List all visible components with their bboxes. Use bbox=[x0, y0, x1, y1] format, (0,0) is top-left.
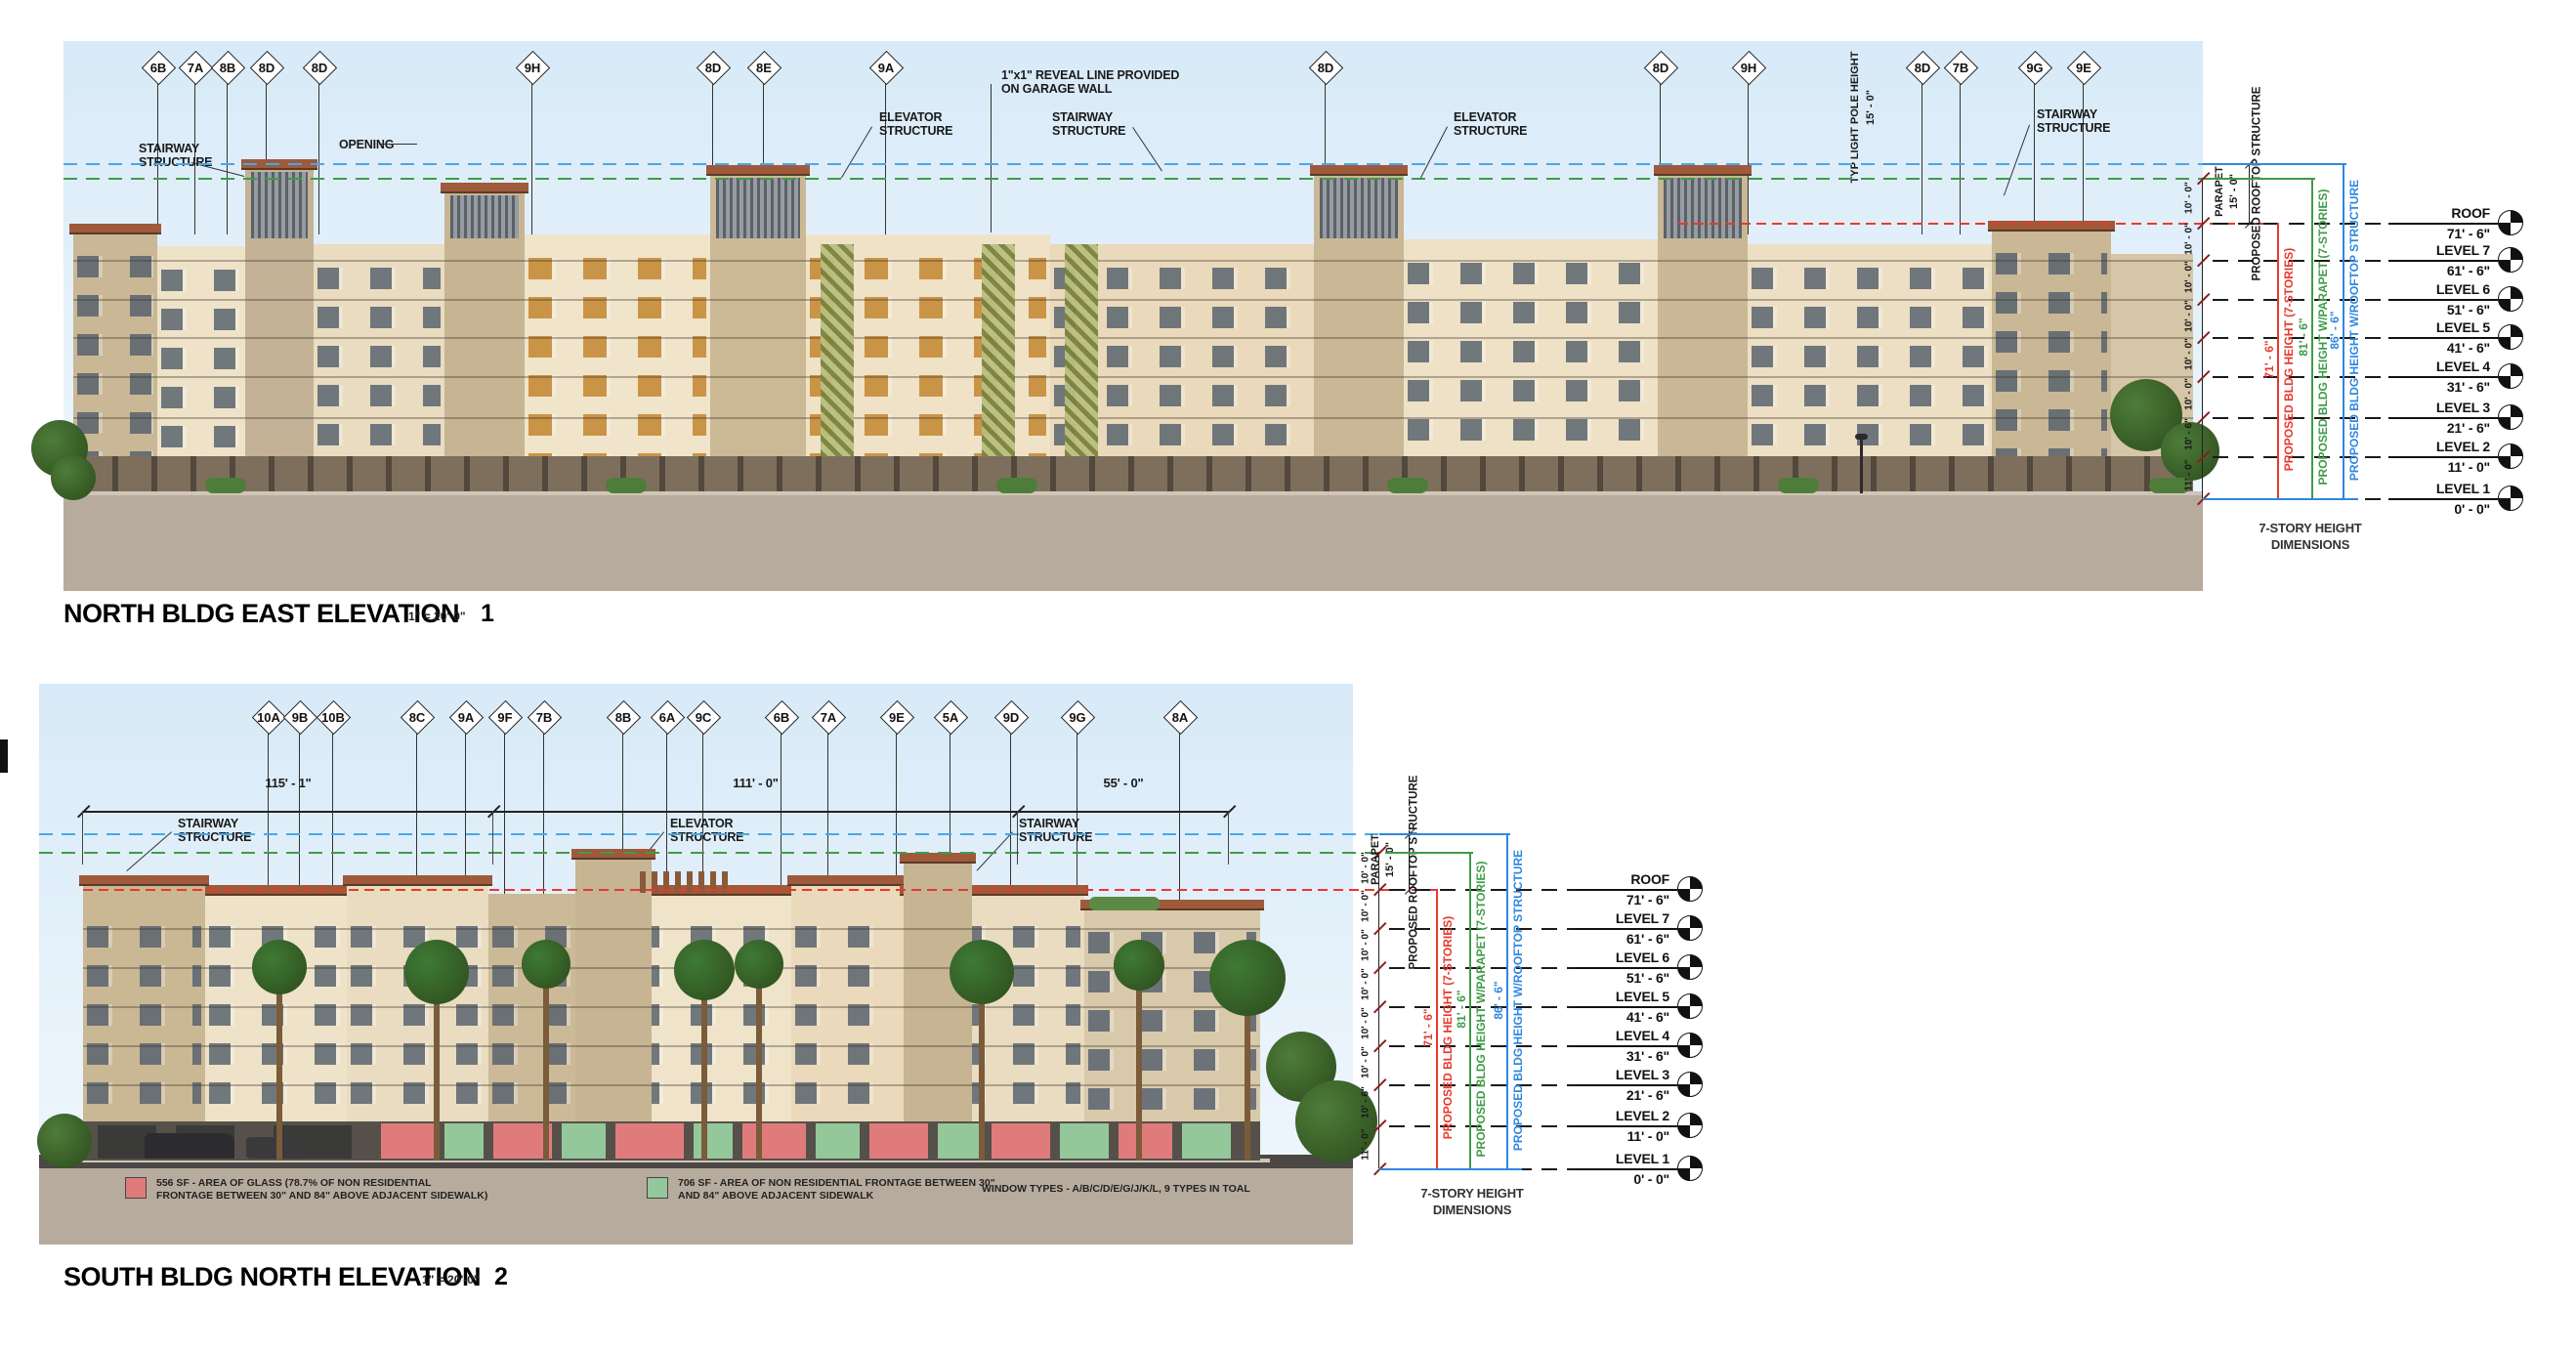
el1-level-line-solid bbox=[2388, 337, 2498, 339]
el2-frontage-panel bbox=[694, 1123, 733, 1159]
elevation2-number: 2 bbox=[494, 1263, 508, 1291]
el1-level-name: LEVEL 1 bbox=[2345, 481, 2490, 496]
el2-level-target-icon bbox=[1677, 876, 1703, 902]
el2-height-caption-2: DIMENSIONS bbox=[1365, 1203, 1580, 1217]
el1-vent-grille bbox=[716, 178, 800, 238]
el1-marker-label: 7A bbox=[179, 61, 212, 75]
el2-frontage-panel bbox=[1119, 1123, 1172, 1159]
el1-annotation: STRUCTURE bbox=[1454, 124, 1527, 138]
el1-level-elev: 11' - 0" bbox=[2345, 459, 2490, 475]
el2-rooftop-height-dim-line bbox=[1506, 833, 1508, 1168]
el1-marker-label: 9A bbox=[869, 61, 903, 75]
el2-level-elev: 31' - 6" bbox=[1525, 1048, 1669, 1064]
el1-roof-cap bbox=[441, 183, 528, 191]
el1-marker-leader bbox=[2034, 83, 2035, 234]
el1-window-grid bbox=[1996, 243, 2107, 456]
el1-level-line-solid bbox=[2388, 498, 2498, 500]
el2-level-target-icon bbox=[1677, 915, 1703, 941]
el1-level-elev: 31' - 6" bbox=[2345, 379, 2490, 395]
el1-light-pole-head bbox=[1855, 434, 1868, 440]
el1-floor-dim: 11' - 0" bbox=[2184, 455, 2195, 494]
el2-facade-segment bbox=[575, 858, 652, 1121]
el1-level-line bbox=[2213, 299, 2388, 301]
el2-level-elev: 21' - 6" bbox=[1525, 1087, 1669, 1103]
el1-annotation: STRUCTURE bbox=[2037, 121, 2110, 135]
el1-level-target-icon bbox=[2498, 404, 2523, 430]
el1-window-grid bbox=[77, 246, 153, 456]
el2-palm-trunk bbox=[756, 977, 762, 1161]
el2-level-line-solid bbox=[1575, 1125, 1677, 1127]
el2-shrub bbox=[37, 1114, 92, 1168]
el2-floor-dim: 10' - 0" bbox=[1361, 1004, 1372, 1043]
el2-palm-trunk bbox=[276, 977, 282, 1161]
el2-level-line-solid bbox=[1575, 1084, 1677, 1086]
el2-floor-line bbox=[83, 1006, 1260, 1008]
el1-annotation: ELEVATOR bbox=[879, 110, 942, 124]
el2-floor-line bbox=[83, 1045, 1260, 1047]
el2-dim-tick bbox=[1373, 1078, 1386, 1091]
el1-vent-grille bbox=[251, 172, 308, 238]
el1-marker-leader bbox=[318, 83, 319, 234]
el2-level-name: LEVEL 3 bbox=[1525, 1067, 1669, 1082]
el1-annotation: STAIRWAY bbox=[139, 142, 199, 155]
el2-frontage-panel bbox=[615, 1123, 684, 1159]
el1-floor-dim: 10' - 0" bbox=[2184, 296, 2195, 335]
el2-roof-cap bbox=[343, 875, 492, 884]
el2-level-name: LEVEL 2 bbox=[1525, 1108, 1669, 1123]
el2-marker-label: 9F bbox=[488, 710, 522, 725]
el1-marker-label: 8D bbox=[1906, 61, 1939, 75]
el1-level-line-solid bbox=[2388, 260, 2498, 262]
elevation1-number: 1 bbox=[481, 600, 494, 628]
el1-parapet-height-line bbox=[63, 178, 2313, 180]
el1-marker-label: 8D bbox=[1644, 61, 1677, 75]
el2-floor-dim-string bbox=[1378, 852, 1379, 1168]
el2-parapet-label: PARAPET bbox=[1370, 821, 1381, 899]
el1-green-top bbox=[2209, 178, 2315, 180]
el1-floor-dim: 10' - 0" bbox=[2184, 179, 2195, 218]
el1-window-grid bbox=[317, 258, 441, 456]
el1-level-target-icon bbox=[2498, 324, 2523, 350]
sheet-edge-mark bbox=[0, 739, 8, 773]
el2-max-rooftop-line bbox=[39, 833, 1508, 835]
el2-floor-line bbox=[83, 1084, 1260, 1086]
el2-parapet-dim: 15' - 0" bbox=[1384, 821, 1396, 899]
el1-marker-leader bbox=[885, 83, 886, 234]
el1-level-line bbox=[2213, 260, 2388, 262]
el1-height-caption-1: 7-STORY HEIGHT bbox=[2203, 521, 2418, 535]
elevation2-title: SOUTH BLDG NORTH ELEVATION bbox=[63, 1262, 481, 1292]
el1-marker-label: 7B bbox=[1944, 61, 1977, 75]
el1-level-target-icon bbox=[2498, 486, 2523, 511]
el1-level-target-icon bbox=[2498, 210, 2523, 235]
el2-level-target-icon bbox=[1677, 1113, 1703, 1138]
legend-red-label-2: FRONTAGE BETWEEN 30" AND 84" ABOVE ADJAC… bbox=[156, 1190, 487, 1203]
el1-shrub bbox=[1778, 478, 1819, 493]
el1-vent-grille bbox=[450, 195, 519, 238]
el2-roof-cap bbox=[787, 875, 908, 884]
elevation1-title: NORTH BLDG EAST ELEVATION bbox=[63, 599, 459, 629]
el1-annotation: STRUCTURE bbox=[139, 155, 212, 169]
el2-level-line-solid bbox=[1575, 1045, 1677, 1047]
el1-level-line-solid bbox=[2388, 223, 2498, 225]
el1-annotation: STRUCTURE bbox=[879, 124, 952, 138]
el2-window-grid bbox=[87, 916, 201, 1121]
el1-floor-dim: 10' - 0" bbox=[2184, 258, 2195, 297]
el1-level-target-icon bbox=[2498, 363, 2523, 389]
elevation2-scale: 1" = 20'-0" bbox=[422, 1273, 480, 1287]
el2-bldg-height-dim: 71' - 6" bbox=[1421, 993, 1435, 1062]
el1-parapet-height-dim: 81' - 6" bbox=[2297, 303, 2310, 371]
el2-window-grid bbox=[795, 916, 900, 1121]
el1-marker-label: 8E bbox=[747, 61, 781, 75]
el2-palm-trunk bbox=[543, 977, 549, 1161]
el2-parapet-height-dim: 81' - 6" bbox=[1455, 975, 1468, 1043]
el2-marker-label: 6B bbox=[765, 710, 798, 725]
el2-level-target-icon bbox=[1677, 1033, 1703, 1058]
el2-blue-top bbox=[1379, 833, 1510, 835]
el1-annotation: ON GARAGE WALL bbox=[1001, 82, 1112, 96]
el1-shrub bbox=[606, 478, 647, 493]
el2-palm-crown bbox=[1209, 940, 1286, 1016]
el2-dim-ext bbox=[1228, 811, 1229, 865]
el2-level-line-solid bbox=[1575, 967, 1677, 969]
el1-vent-grille bbox=[1320, 178, 1398, 238]
el2-level-line-solid bbox=[1575, 928, 1677, 930]
el2-parapet-height-line bbox=[39, 852, 1471, 854]
el2-green-top bbox=[1385, 852, 1473, 854]
el1-blue-top bbox=[2203, 163, 2346, 165]
el2-marker-label: 9D bbox=[994, 710, 1028, 725]
el1-shrub bbox=[996, 478, 1037, 493]
el2-marker-label: 9E bbox=[880, 710, 913, 725]
el2-floor-dim: 10' - 0" bbox=[1361, 1043, 1372, 1082]
el2-palm-crown bbox=[522, 940, 570, 989]
drawing-canvas: 6B7A8B8D8D9H8D8E9A8D8D9H8D7B9G9E10A9B10B… bbox=[0, 0, 2576, 1351]
el1-annotation: STAIRWAY bbox=[1052, 110, 1113, 124]
el1-tree bbox=[51, 455, 96, 500]
el2-level-name: LEVEL 7 bbox=[1525, 910, 1669, 926]
el2-roof-cap bbox=[900, 853, 976, 862]
el1-level-elev: 51' - 6" bbox=[2345, 302, 2490, 317]
legend-red-swatch bbox=[125, 1177, 147, 1199]
el2-marker-label: 8C bbox=[401, 710, 434, 725]
el2-level-elev: 11' - 0" bbox=[1525, 1128, 1669, 1144]
el2-palm-trunk bbox=[979, 977, 985, 1161]
el1-roof-cap bbox=[706, 165, 810, 174]
el2-level-line-solid bbox=[1575, 1006, 1677, 1008]
el1-marker-label: 8D bbox=[303, 61, 336, 75]
el2-dim-tick bbox=[1373, 1000, 1386, 1013]
el1-rooftop-height-label: PROPOSED BLDG HEIGHT W/ROOFTOP STRUCTURE bbox=[2347, 154, 2361, 506]
el1-marker-leader bbox=[227, 83, 228, 234]
el1-floor-line bbox=[73, 376, 2193, 378]
el2-marker-label: 7A bbox=[812, 710, 845, 725]
el2-level-elev: 61' - 6" bbox=[1525, 931, 1669, 947]
el1-bldg-height-dim-line bbox=[2277, 223, 2279, 498]
el1-level-elev: 21' - 6" bbox=[2345, 420, 2490, 436]
el2-level-name: LEVEL 5 bbox=[1525, 989, 1669, 1004]
el2-frontage-panel bbox=[1060, 1123, 1109, 1159]
el1-level-name: LEVEL 2 bbox=[2345, 439, 2490, 454]
el2-palm-crown bbox=[735, 940, 783, 989]
elevation1-ground bbox=[63, 493, 2203, 591]
el1-marker-leader bbox=[531, 83, 532, 234]
el2-marker-label: 9C bbox=[687, 710, 720, 725]
el1-level-target-icon bbox=[2498, 443, 2523, 469]
el2-marker-label: 6A bbox=[651, 710, 684, 725]
el1-shrub bbox=[1387, 478, 1428, 493]
el1-max-rooftop-line bbox=[63, 163, 2344, 165]
el1-marker-label: 6B bbox=[142, 61, 175, 75]
el1-marker-label: 8D bbox=[1309, 61, 1342, 75]
el2-frontage-panel bbox=[816, 1123, 860, 1159]
el1-sidewalk bbox=[63, 491, 2203, 495]
el1-marker-label: 9H bbox=[1732, 61, 1765, 75]
el1-annotation: STRUCTURE bbox=[1052, 124, 1125, 138]
elevation1-scale: 1" = 20'-0" bbox=[408, 610, 466, 623]
el2-frontage-panel bbox=[742, 1123, 806, 1159]
el1-height-caption-2: DIMENSIONS bbox=[2203, 537, 2418, 552]
el1-window-grid bbox=[161, 260, 241, 456]
el2-frontage-panel bbox=[992, 1123, 1050, 1159]
el2-level-elev: 51' - 6" bbox=[1525, 970, 1669, 986]
el2-frontage-panel bbox=[444, 1123, 484, 1159]
legend-window-types-note: WINDOW TYPES - A/B/C/D/E/G/J/K/L, 9 TYPE… bbox=[982, 1183, 1250, 1196]
legend-green-label-1: 706 SF - AREA OF NON RESIDENTIAL FRONTAG… bbox=[678, 1177, 995, 1190]
el1-level-elev: 61' - 6" bbox=[2345, 263, 2490, 278]
el2-dim-label: 115' - 1" bbox=[230, 776, 347, 790]
el1-annotation: STAIRWAY bbox=[2037, 107, 2097, 121]
el1-window-grid bbox=[1752, 258, 1988, 456]
el2-height-caption-1: 7-STORY HEIGHT bbox=[1365, 1186, 1580, 1201]
el1-annotation-leader bbox=[379, 144, 417, 145]
el2-floor-dim: 10' - 6" bbox=[1361, 1083, 1372, 1122]
el2-dim-ext bbox=[492, 811, 493, 865]
el2-level-elev: 41' - 6" bbox=[1525, 1009, 1669, 1025]
el2-marker-label: 8B bbox=[607, 710, 640, 725]
el2-rooftop-height-label: PROPOSED BLDG HEIGHT W/ROOFTOP STRUCTURE bbox=[1511, 824, 1525, 1176]
el1-lattice-panel bbox=[1065, 244, 1098, 456]
el2-marker-label: 9B bbox=[283, 710, 317, 725]
el2-palm-trunk bbox=[701, 977, 707, 1161]
el1-level-elev: 41' - 6" bbox=[2345, 340, 2490, 356]
elevation-sheet: 6B7A8B8D8D9H8D8E9A8D8D9H8D7B9G9E10A9B10B… bbox=[0, 0, 2576, 1351]
el2-dim-tick bbox=[1373, 1039, 1386, 1052]
el1-level-line-solid bbox=[2388, 376, 2498, 378]
el2-level-target-icon bbox=[1677, 993, 1703, 1019]
el2-level-target-icon bbox=[1677, 954, 1703, 980]
el1-level-line bbox=[2213, 417, 2388, 419]
el2-marker-label: 7B bbox=[528, 710, 561, 725]
el1-lattice-panel bbox=[982, 244, 1015, 456]
el1-annotation-leader bbox=[991, 84, 992, 232]
el1-marker-leader bbox=[1960, 83, 1961, 234]
el1-bldg-height-label: PROPOSED BLDG HEIGHT (7-STORIES) bbox=[2282, 213, 2296, 506]
legend-red-label-1: 556 SF - AREA OF GLASS (78.7% OF NON RES… bbox=[156, 1177, 432, 1190]
el2-roof-garden bbox=[1089, 897, 1160, 910]
el2-dim-tick bbox=[1373, 961, 1386, 974]
el1-level-name: LEVEL 7 bbox=[2345, 242, 2490, 258]
el1-floor-line bbox=[73, 299, 2193, 301]
el2-dim-ext bbox=[82, 811, 83, 865]
el1-level-line bbox=[2213, 456, 2388, 458]
el2-dim-tick bbox=[1373, 922, 1386, 935]
el1-level-target-icon bbox=[2498, 286, 2523, 312]
legend-green-swatch bbox=[647, 1177, 668, 1199]
el2-level-target-icon bbox=[1677, 1072, 1703, 1097]
el1-annotation: ELEVATOR bbox=[1454, 110, 1516, 124]
el1-marker-label: 9E bbox=[2067, 61, 2100, 75]
el1-level-name: ROOF bbox=[2345, 205, 2490, 221]
el2-frontage-panel bbox=[562, 1123, 606, 1159]
el2-roof-cap bbox=[79, 875, 209, 884]
el1-floor-line bbox=[73, 417, 2193, 419]
el2-parapet-height-label: PROPOSED BLDG HEIGHT W/PARAPET (7-STORIE… bbox=[1474, 843, 1488, 1175]
el1-marker-label: 8D bbox=[250, 61, 283, 75]
el2-marker-label: 10A bbox=[252, 710, 285, 725]
el2-palm-crown bbox=[950, 940, 1014, 1004]
el2-vehicle bbox=[246, 1137, 305, 1159]
el1-lattice-panel bbox=[821, 244, 854, 456]
el1-roof-cap bbox=[1310, 165, 1408, 174]
el1-floor-line bbox=[73, 337, 2193, 339]
el2-level-elev: 0' - 0" bbox=[1525, 1171, 1669, 1187]
el1-shrub bbox=[205, 478, 246, 493]
el2-rooftop-height-dim: 86' - 6" bbox=[1492, 966, 1505, 1034]
el1-marker-label: 8D bbox=[697, 61, 730, 75]
el2-floor-dim: 10' - 0" bbox=[1361, 926, 1372, 965]
el2-bldg-height-label: PROPOSED BLDG HEIGHT (7-STORIES) bbox=[1441, 881, 1455, 1174]
el2-vehicle bbox=[145, 1133, 234, 1159]
el1-base-level bbox=[73, 456, 2193, 493]
el2-level-elev: 71' - 6" bbox=[1525, 892, 1669, 908]
el2-level-target-icon bbox=[1677, 1156, 1703, 1181]
el2-floor-dim: 10' - 0" bbox=[1361, 965, 1372, 1004]
el2-level-name: LEVEL 4 bbox=[1525, 1028, 1669, 1043]
el1-level-line-solid bbox=[2388, 299, 2498, 301]
el2-level-name: LEVEL 1 bbox=[1525, 1151, 1669, 1166]
el1-floor-dim: 10' - 0" bbox=[2184, 375, 2195, 414]
el2-level-line-solid bbox=[1575, 1168, 1677, 1170]
el2-rooftop-structure-label: PROPOSED ROOFTOP STRUCTURE bbox=[1408, 768, 1419, 978]
el2-bldg-height-line bbox=[83, 889, 1438, 891]
el1-floor-dim: 10' - 0" bbox=[2184, 220, 2195, 259]
el2-frontage-panel bbox=[869, 1123, 928, 1159]
el1-level-elev: 71' - 6" bbox=[2345, 226, 2490, 241]
el2-marker-label: 10B bbox=[317, 710, 350, 725]
el1-marker-leader bbox=[2083, 83, 2084, 234]
el1-window-grid bbox=[1408, 253, 1654, 456]
el2-annotation: ELEVATOR bbox=[670, 817, 733, 830]
el2-level-name: ROOF bbox=[1525, 871, 1669, 887]
el2-dim-line bbox=[83, 811, 1229, 813]
el1-rooftop-height-dim-line bbox=[2343, 163, 2344, 498]
el2-parapet-height-dim-line bbox=[1469, 852, 1471, 1168]
el1-level-elev: 0' - 0" bbox=[2345, 501, 2490, 517]
el1-level-line-solid bbox=[2388, 456, 2498, 458]
el1-marker-label: 8B bbox=[211, 61, 244, 75]
el2-annotation: STAIRWAY bbox=[178, 817, 238, 830]
el1-level-name: LEVEL 4 bbox=[2345, 359, 2490, 374]
el1-floor-dim: 10' - 0" bbox=[2184, 335, 2195, 374]
el2-dim-label: 55' - 0" bbox=[1065, 776, 1182, 790]
el1-pole-height-dim: 15' - 0" bbox=[1865, 73, 1877, 142]
el1-level-name: LEVEL 3 bbox=[2345, 400, 2490, 415]
el1-level-line-solid bbox=[2388, 417, 2498, 419]
el1-annotation: 1"x1" REVEAL LINE PROVIDED bbox=[1001, 68, 1179, 82]
el1-pole-height-label: TYP LIGHT POLE HEIGHT bbox=[1849, 44, 1861, 190]
el1-level-line bbox=[2213, 376, 2388, 378]
el2-marker-label: 9A bbox=[449, 710, 483, 725]
el2-palm-crown bbox=[404, 940, 469, 1004]
el2-dim-ext bbox=[1017, 811, 1018, 865]
el1-level-name: LEVEL 5 bbox=[2345, 319, 2490, 335]
el2-level-line-solid bbox=[1575, 889, 1677, 891]
el1-marker-label: 9H bbox=[516, 61, 549, 75]
el2-marker-label: 9G bbox=[1061, 710, 1094, 725]
el2-frontage-panel bbox=[1182, 1123, 1231, 1159]
el1-floor-dim: 10' - 6" bbox=[2184, 415, 2195, 454]
el1-vent-grille bbox=[1664, 178, 1742, 238]
el1-bldg-height-dim: 71' - 6" bbox=[2262, 325, 2276, 394]
el2-dim-label: 111' - 0" bbox=[697, 776, 815, 790]
el1-window-grid bbox=[528, 248, 706, 456]
el2-palm-crown bbox=[252, 940, 307, 994]
el2-palm-crown bbox=[674, 940, 735, 1000]
el1-roof-cap bbox=[1654, 165, 1752, 174]
el1-floor-line bbox=[73, 260, 2193, 262]
el1-roof-cap bbox=[69, 224, 161, 232]
el2-marker-label: 5A bbox=[934, 710, 967, 725]
el1-marker-leader bbox=[1921, 83, 1922, 234]
el1-rooftop-structure-label: PROPOSED ROOFTOP STRUCTURE bbox=[2251, 79, 2262, 289]
el1-parapet-dim-line bbox=[2249, 163, 2250, 223]
el1-marker-label: 9G bbox=[2018, 61, 2051, 75]
legend-green-label-2: AND 84" ABOVE ADJACENT SIDEWALK bbox=[678, 1190, 873, 1203]
el2-palm-trunk bbox=[434, 977, 440, 1161]
el1-level-target-icon bbox=[2498, 247, 2523, 273]
el1-rooftop-height-dim: 86' - 6" bbox=[2328, 296, 2342, 364]
el2-palm-crown bbox=[1114, 940, 1164, 991]
el2-bldg-height-dim-line bbox=[1436, 889, 1438, 1168]
el2-palm-trunk bbox=[1136, 977, 1142, 1161]
el2-floor-dim: 11' - 0" bbox=[1361, 1125, 1372, 1164]
el2-frontage-panel bbox=[938, 1123, 982, 1159]
el2-floor-line bbox=[83, 928, 1260, 930]
el1-light-pole bbox=[1860, 440, 1863, 493]
el2-annotation: STAIRWAY bbox=[1019, 817, 1079, 830]
el2-marker-label: 8A bbox=[1163, 710, 1197, 725]
el1-level-name: LEVEL 6 bbox=[2345, 281, 2490, 297]
el1-parapet-height-dim-line bbox=[2311, 178, 2313, 498]
el2-level-name: LEVEL 6 bbox=[1525, 950, 1669, 965]
el1-blue-bottom bbox=[2203, 498, 2358, 500]
el2-frontage-panel bbox=[381, 1123, 435, 1159]
